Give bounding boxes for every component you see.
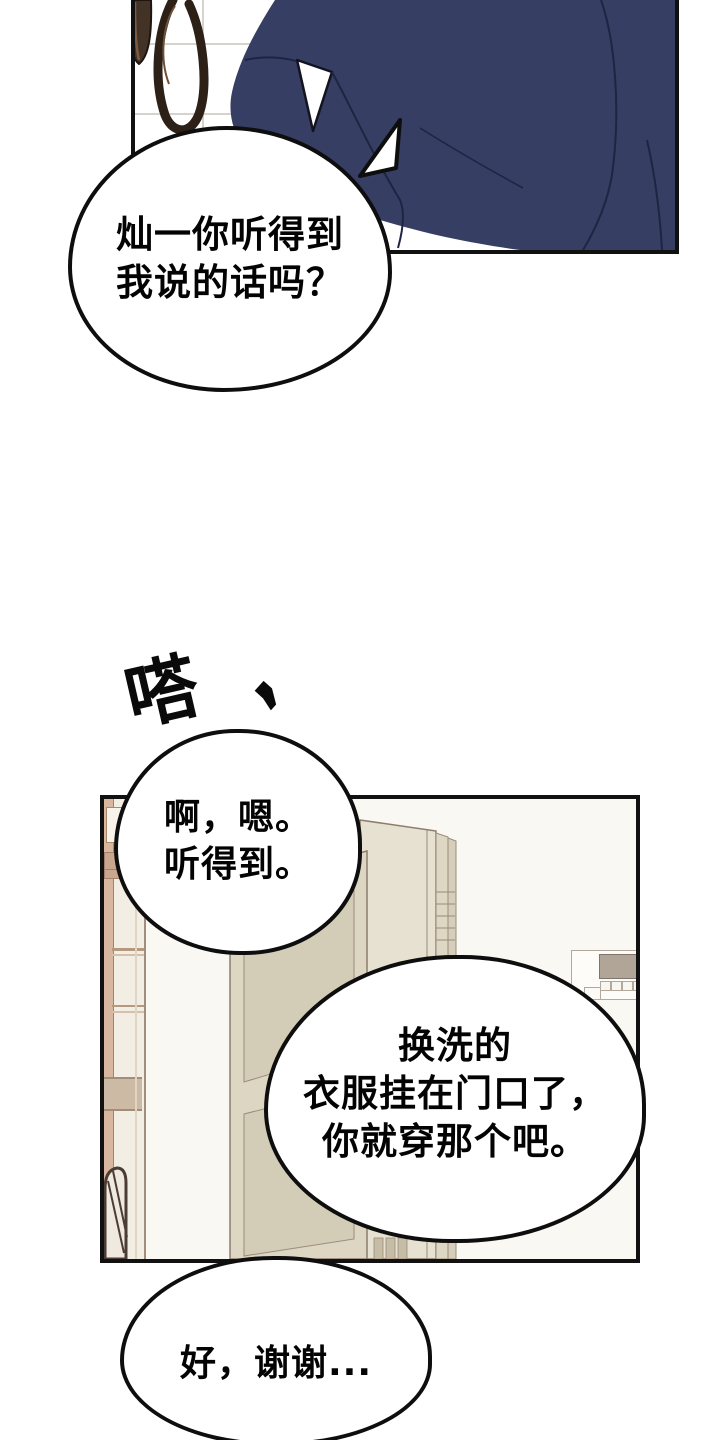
shelf-line <box>112 1005 144 1007</box>
speech-line: 啊，嗯。 <box>164 795 312 842</box>
intercom-screen <box>599 954 640 979</box>
comic-page: 灿一你听得到 我说的话吗？ 嗒 , <box>0 0 720 1440</box>
intercom-button <box>611 981 622 991</box>
sfx-tap: 嗒 <box>119 649 205 735</box>
drying-rack <box>100 1157 134 1259</box>
speech-bubble-clothes: 换洗的 衣服挂在门口了， 你就穿那个吧。 <box>264 955 646 1243</box>
speech-line: 灿一你听得到 <box>116 211 344 259</box>
intercom-button <box>622 981 633 991</box>
speech-line: 你就穿那个吧。 <box>322 1118 588 1166</box>
sfx-tick-mark: , <box>213 642 289 714</box>
speech-line: 衣服挂在门口了， <box>303 1070 607 1118</box>
speech-tail <box>348 116 420 188</box>
speech-line: 我说的话吗？ <box>116 259 344 307</box>
speech-bubble-thanks: 好，谢谢... <box>120 1256 432 1440</box>
speech-line: 听得到。 <box>164 842 312 889</box>
speech-line: 换洗的 <box>398 1022 512 1070</box>
shelf-line <box>112 948 144 951</box>
intercom-button <box>633 981 640 991</box>
speech-line: 好，谢谢... <box>180 1341 372 1388</box>
speech-bubble-reply: 啊，嗯。 听得到。 <box>114 729 362 955</box>
intercom-button <box>600 981 611 991</box>
shelf-line <box>112 1011 144 1013</box>
shelf-line <box>112 954 144 956</box>
